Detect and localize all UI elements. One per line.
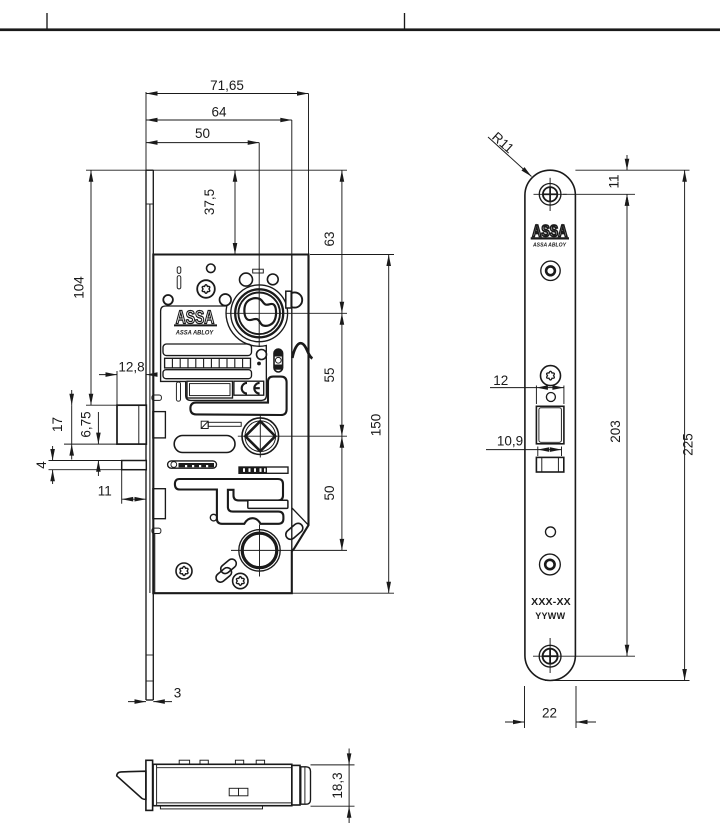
- svg-text:ASSA ABLOY: ASSA ABLOY: [532, 242, 567, 248]
- svg-text:50: 50: [322, 485, 337, 500]
- svg-text:4: 4: [34, 461, 49, 469]
- svg-text:225: 225: [681, 433, 696, 456]
- svg-text:63: 63: [322, 231, 337, 246]
- svg-text:55: 55: [322, 367, 337, 382]
- svg-text:3: 3: [174, 686, 182, 701]
- svg-text:17: 17: [50, 417, 65, 432]
- svg-text:203: 203: [608, 420, 623, 443]
- svg-text:37,5: 37,5: [202, 189, 217, 215]
- svg-text:150: 150: [369, 414, 384, 437]
- svg-text:11: 11: [607, 174, 622, 188]
- svg-text:12: 12: [493, 373, 508, 388]
- svg-text:104: 104: [72, 276, 87, 299]
- svg-text:YYWW: YYWW: [535, 611, 565, 621]
- svg-text:ASSA: ASSA: [176, 307, 215, 327]
- svg-text:ASSA ABLOY: ASSA ABLOY: [175, 329, 214, 336]
- svg-text:12,8: 12,8: [118, 360, 144, 375]
- svg-text:10,9: 10,9: [497, 434, 523, 449]
- svg-text:50: 50: [195, 126, 210, 141]
- svg-text:71,65: 71,65: [210, 78, 244, 93]
- svg-text:22: 22: [542, 706, 557, 721]
- svg-text:64: 64: [211, 105, 227, 120]
- svg-text:XXX-XX: XXX-XX: [531, 596, 571, 608]
- svg-text:11: 11: [98, 484, 112, 499]
- svg-text:6,75: 6,75: [79, 411, 94, 437]
- svg-text:18,3: 18,3: [330, 772, 345, 798]
